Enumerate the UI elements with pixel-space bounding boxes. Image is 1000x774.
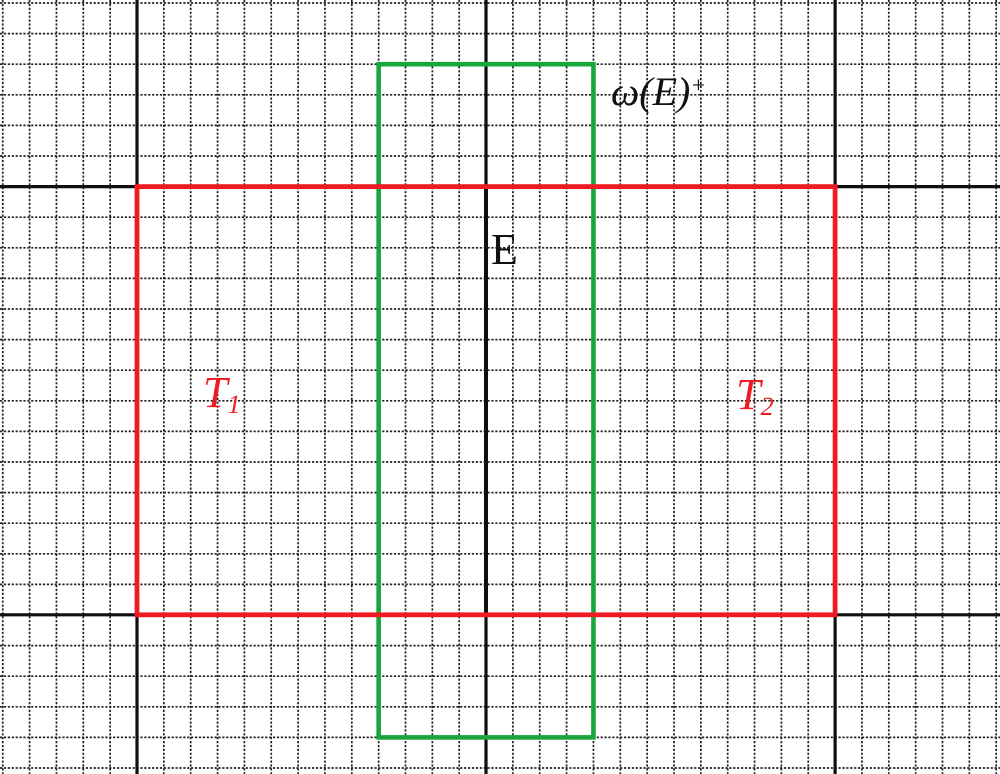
label-text: ω(E)	[611, 69, 690, 114]
tile-T2-label: T2	[736, 373, 774, 417]
label-superscript: +	[690, 72, 706, 98]
label-text: E	[491, 225, 518, 274]
diagram-stage: ω(E)+ E T1 T2	[0, 0, 1000, 774]
omega-window-label: ω(E)+	[611, 72, 706, 112]
label-subscript: 2	[760, 391, 773, 421]
diagram-svg	[0, 0, 1000, 774]
label-text: T	[203, 368, 227, 417]
label-text: T	[736, 370, 760, 419]
tile-T1-label: T1	[203, 371, 241, 415]
label-subscript: 1	[227, 389, 240, 419]
edge-E-label: E	[491, 228, 518, 272]
